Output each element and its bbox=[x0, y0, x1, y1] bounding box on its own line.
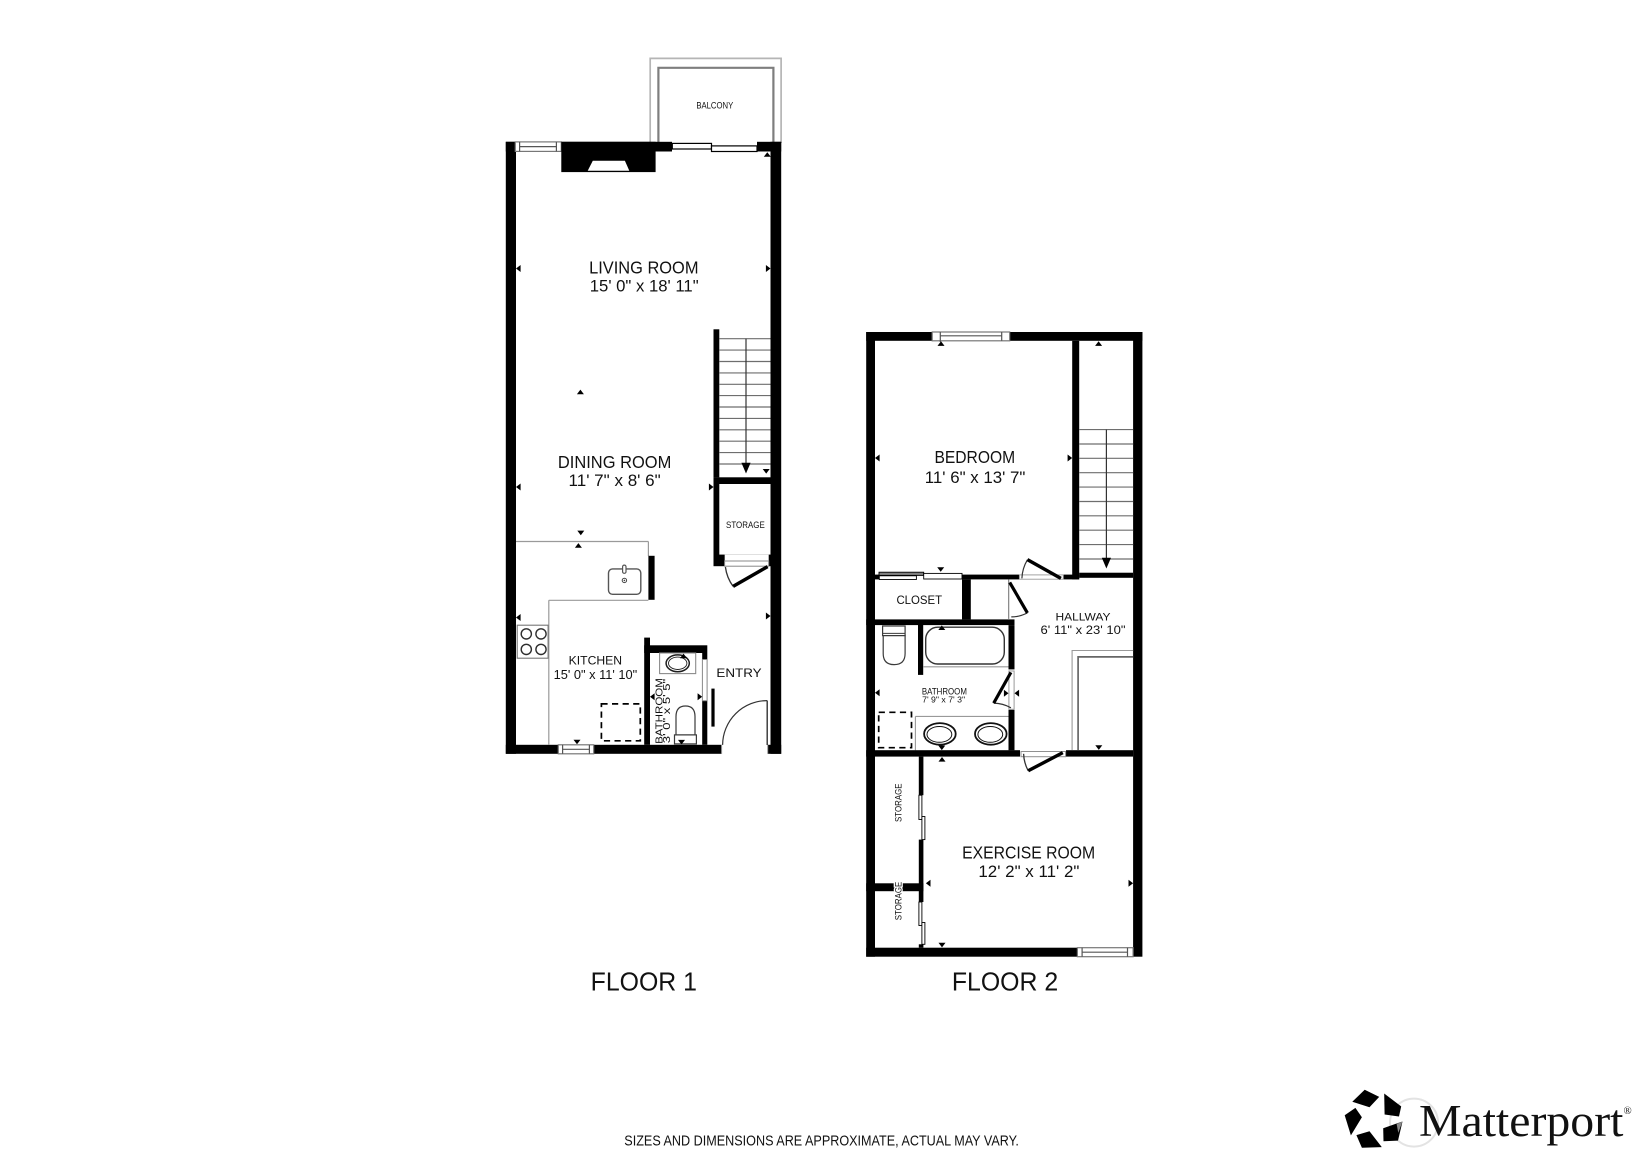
svg-text:EXERCISE ROOM: EXERCISE ROOM bbox=[962, 842, 1095, 862]
svg-text:HALLWAY: HALLWAY bbox=[1056, 611, 1111, 623]
svg-text:7' 9" x 7' 3": 7' 9" x 7' 3" bbox=[922, 694, 965, 704]
svg-text:15' 0" x 18' 11": 15' 0" x 18' 11" bbox=[590, 278, 699, 296]
svg-text:CLOSET: CLOSET bbox=[896, 593, 942, 607]
svg-text:3' 0" x 5' 5": 3' 0" x 5' 5" bbox=[662, 678, 673, 743]
svg-text:6' 11" x 23' 10": 6' 11" x 23' 10" bbox=[1041, 623, 1126, 637]
svg-text:Matterport: Matterport bbox=[1419, 1096, 1624, 1146]
svg-text:FLOOR 2: FLOOR 2 bbox=[952, 968, 1058, 996]
svg-text:DINING ROOM: DINING ROOM bbox=[558, 452, 671, 472]
svg-text:STORAGE: STORAGE bbox=[893, 882, 903, 921]
svg-text:11' 6" x 13' 7": 11' 6" x 13' 7" bbox=[925, 469, 1026, 487]
svg-text:11' 7" x 8' 6": 11' 7" x 8' 6" bbox=[569, 472, 661, 490]
svg-text:FLOOR 1: FLOOR 1 bbox=[591, 968, 697, 996]
svg-text:12' 2" x 11' 2": 12' 2" x 11' 2" bbox=[978, 863, 1079, 881]
svg-text:BEDROOM: BEDROOM bbox=[934, 447, 1015, 467]
svg-text:ENTRY: ENTRY bbox=[716, 666, 761, 680]
svg-text:LIVING ROOM: LIVING ROOM bbox=[589, 258, 698, 278]
svg-text:SIZES AND DIMENSIONS ARE APPRO: SIZES AND DIMENSIONS ARE APPROXIMATE, AC… bbox=[624, 1134, 1019, 1150]
svg-text:KITCHEN: KITCHEN bbox=[569, 653, 622, 667]
svg-text:®: ® bbox=[1624, 1105, 1632, 1117]
svg-text:STORAGE: STORAGE bbox=[726, 520, 765, 530]
svg-text:BALCONY: BALCONY bbox=[696, 101, 733, 111]
svg-text:STORAGE: STORAGE bbox=[893, 783, 903, 822]
svg-text:15' 0" x 11' 10": 15' 0" x 11' 10" bbox=[554, 667, 638, 682]
